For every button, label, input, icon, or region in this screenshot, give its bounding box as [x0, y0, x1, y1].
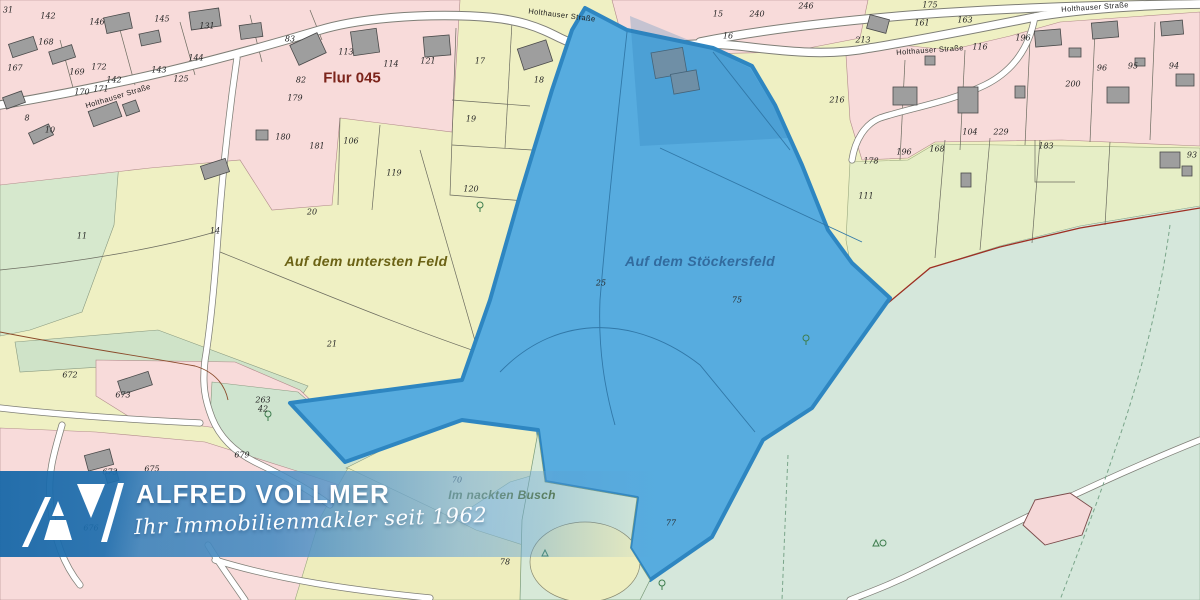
logo-slash-right	[101, 483, 124, 542]
logo-triangle-a-base	[44, 520, 72, 540]
brand-name: ALFRED VOLLMER	[136, 479, 390, 510]
map-viewport: Holthauser StraßeHolthauser StraßeHoltha…	[0, 0, 1200, 600]
logo-triangle-v	[77, 484, 105, 518]
brand-logo-icon	[14, 478, 126, 552]
logo-triangle-a-top	[52, 501, 64, 516]
